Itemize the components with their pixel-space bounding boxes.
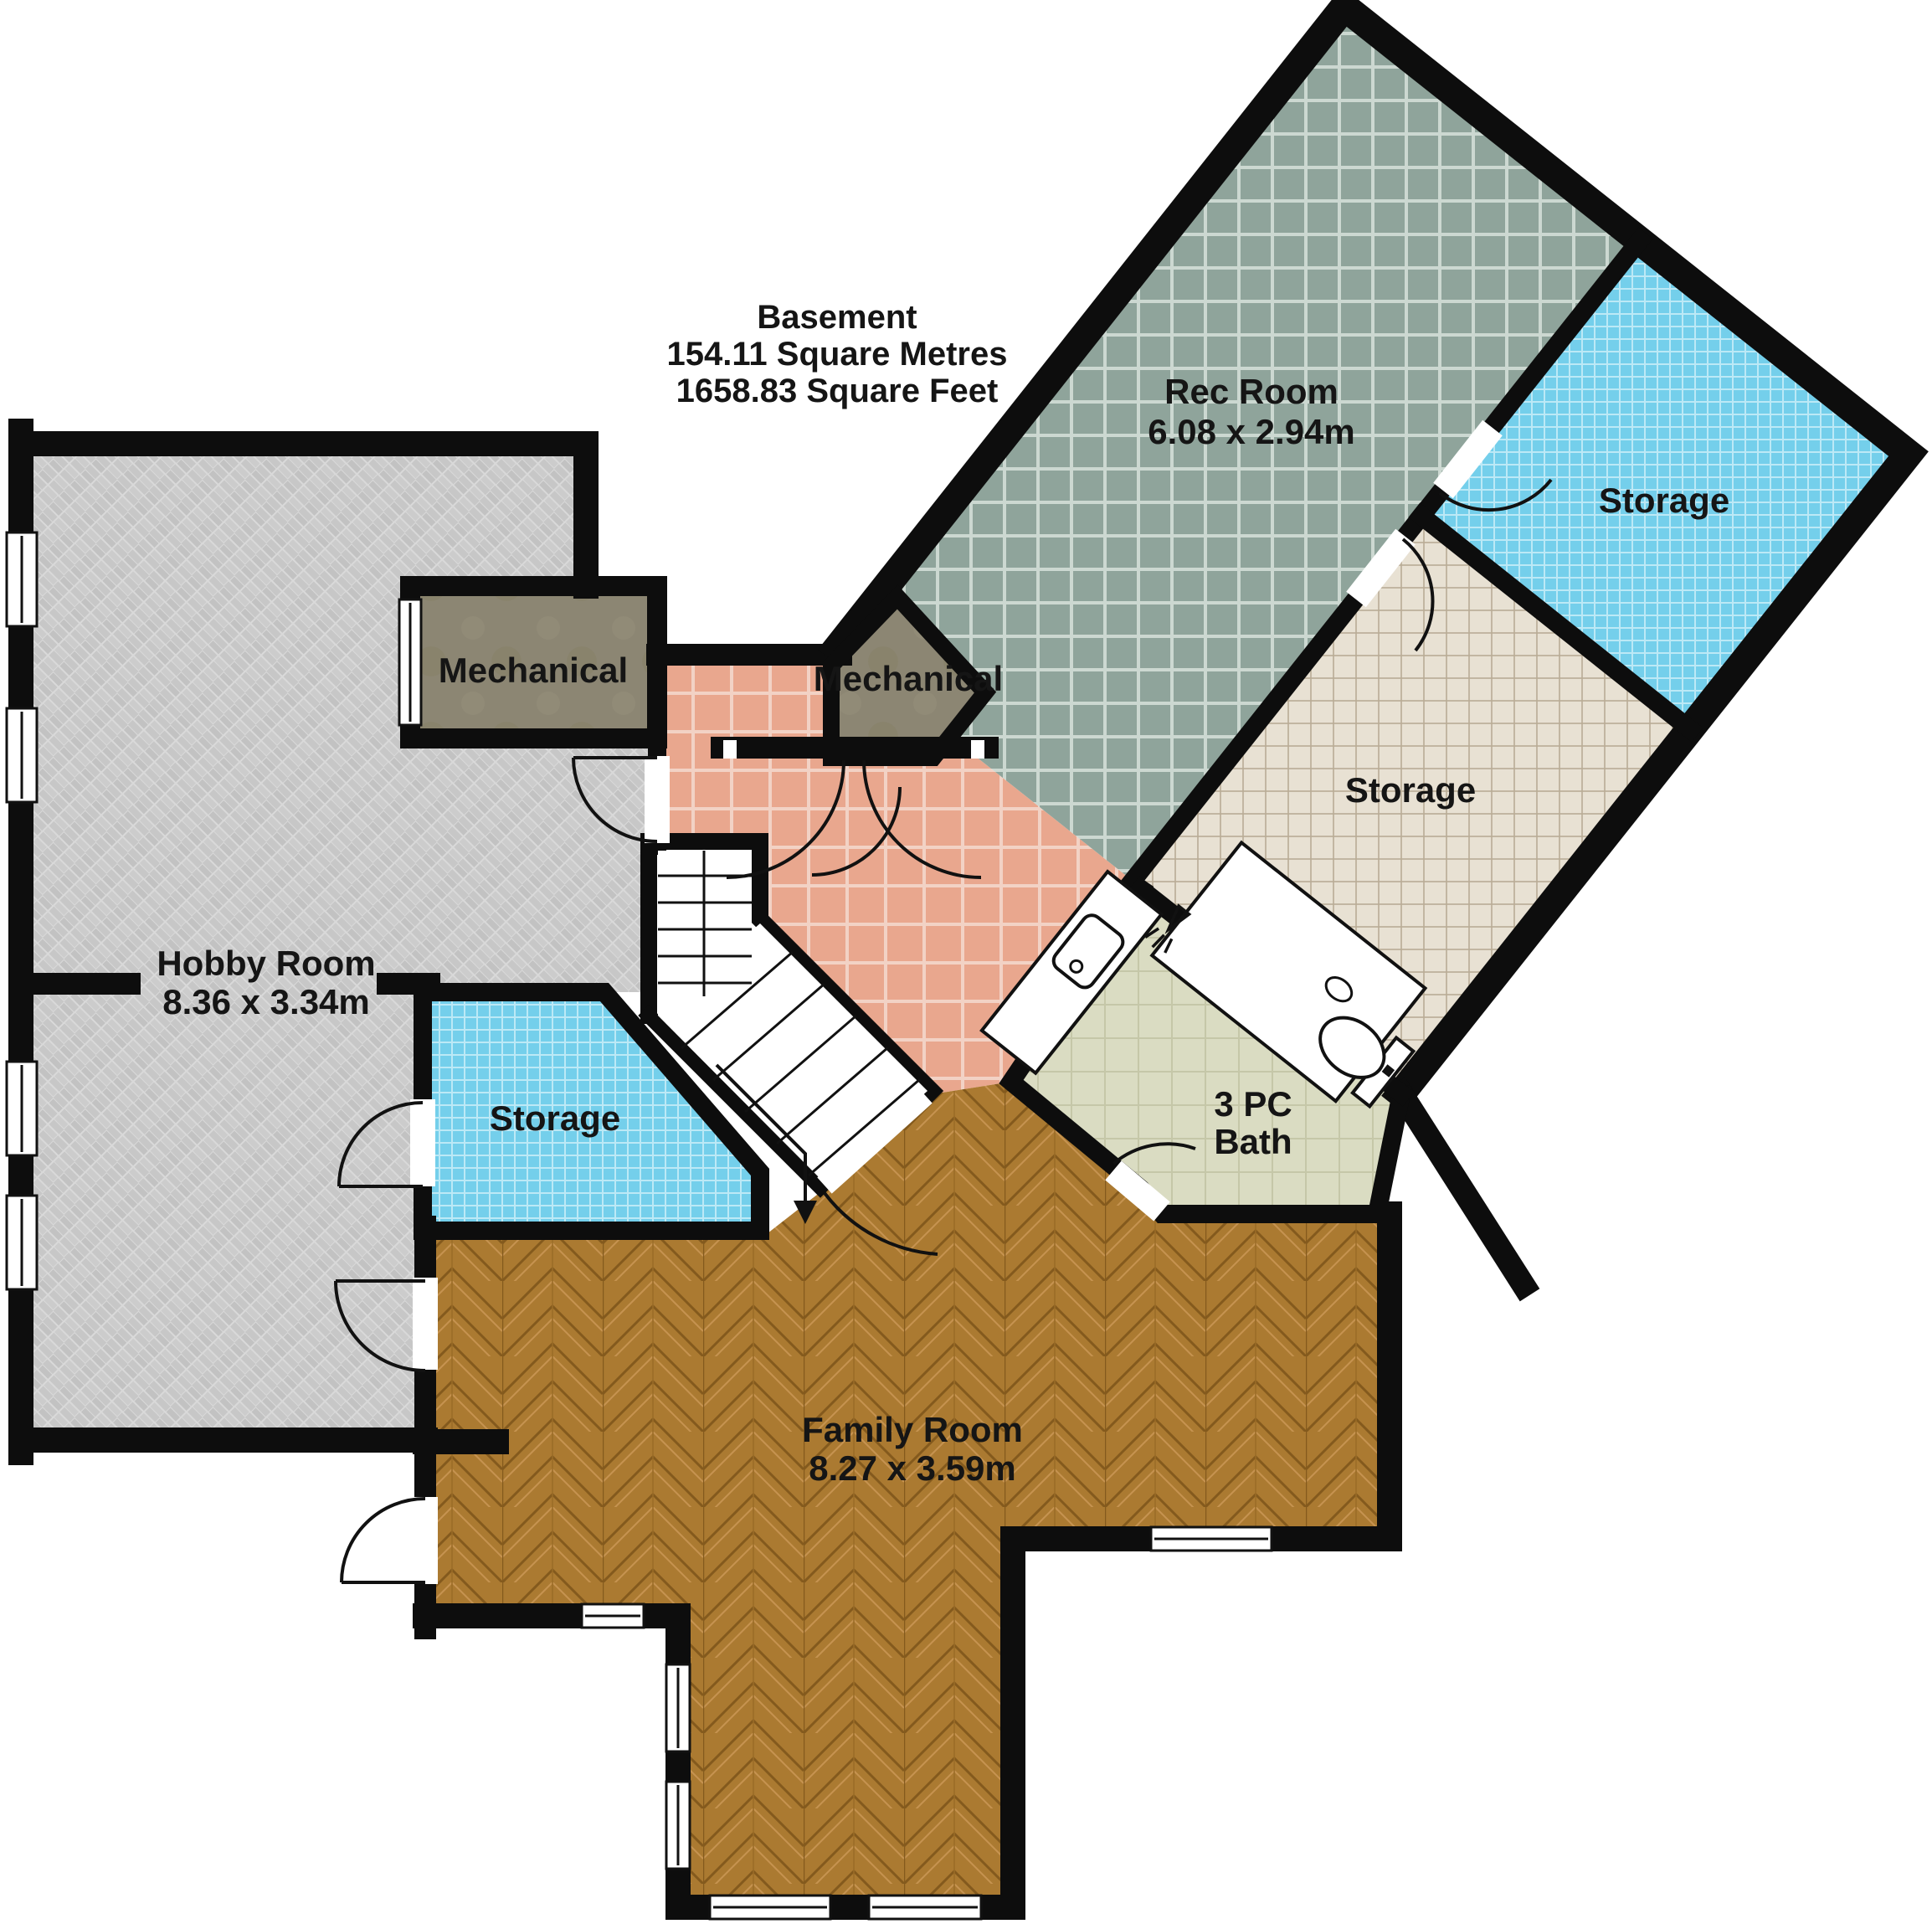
floor-plan-canvas: Basement 154.11 Square Metres 1658.83 Sq… [0, 0, 1932, 1929]
hobby-room-dimensions: 8.36 x 3.34m [162, 982, 370, 1021]
storage-top-right-label: Storage [1599, 481, 1729, 520]
storage-left-label: Storage [490, 1098, 620, 1138]
plan-title: Basement [757, 299, 917, 336]
hobby-room-label: Hobby Room [157, 944, 375, 983]
rec-room-label: Rec Room [1164, 372, 1339, 411]
mechanical-right-label: Mechanical [814, 659, 1003, 698]
plan-area-metric: 154.11 Square Metres [667, 336, 1008, 373]
storage-middle-label: Storage [1345, 770, 1476, 810]
floor-plan: Basement 154.11 Square Metres 1658.83 Sq… [0, 0, 1932, 1929]
bath-label-line2: Bath [1214, 1122, 1292, 1161]
plan-area-imperial: 1658.83 Square Feet [676, 373, 999, 409]
rec-room-dimensions: 6.08 x 2.94m [1148, 412, 1355, 451]
mechanical-left-label: Mechanical [439, 651, 628, 690]
family-room-dimensions: 8.27 x 3.59m [809, 1448, 1016, 1488]
bath-label-line1: 3 PC [1214, 1084, 1292, 1124]
family-room-label: Family Room [802, 1410, 1023, 1449]
